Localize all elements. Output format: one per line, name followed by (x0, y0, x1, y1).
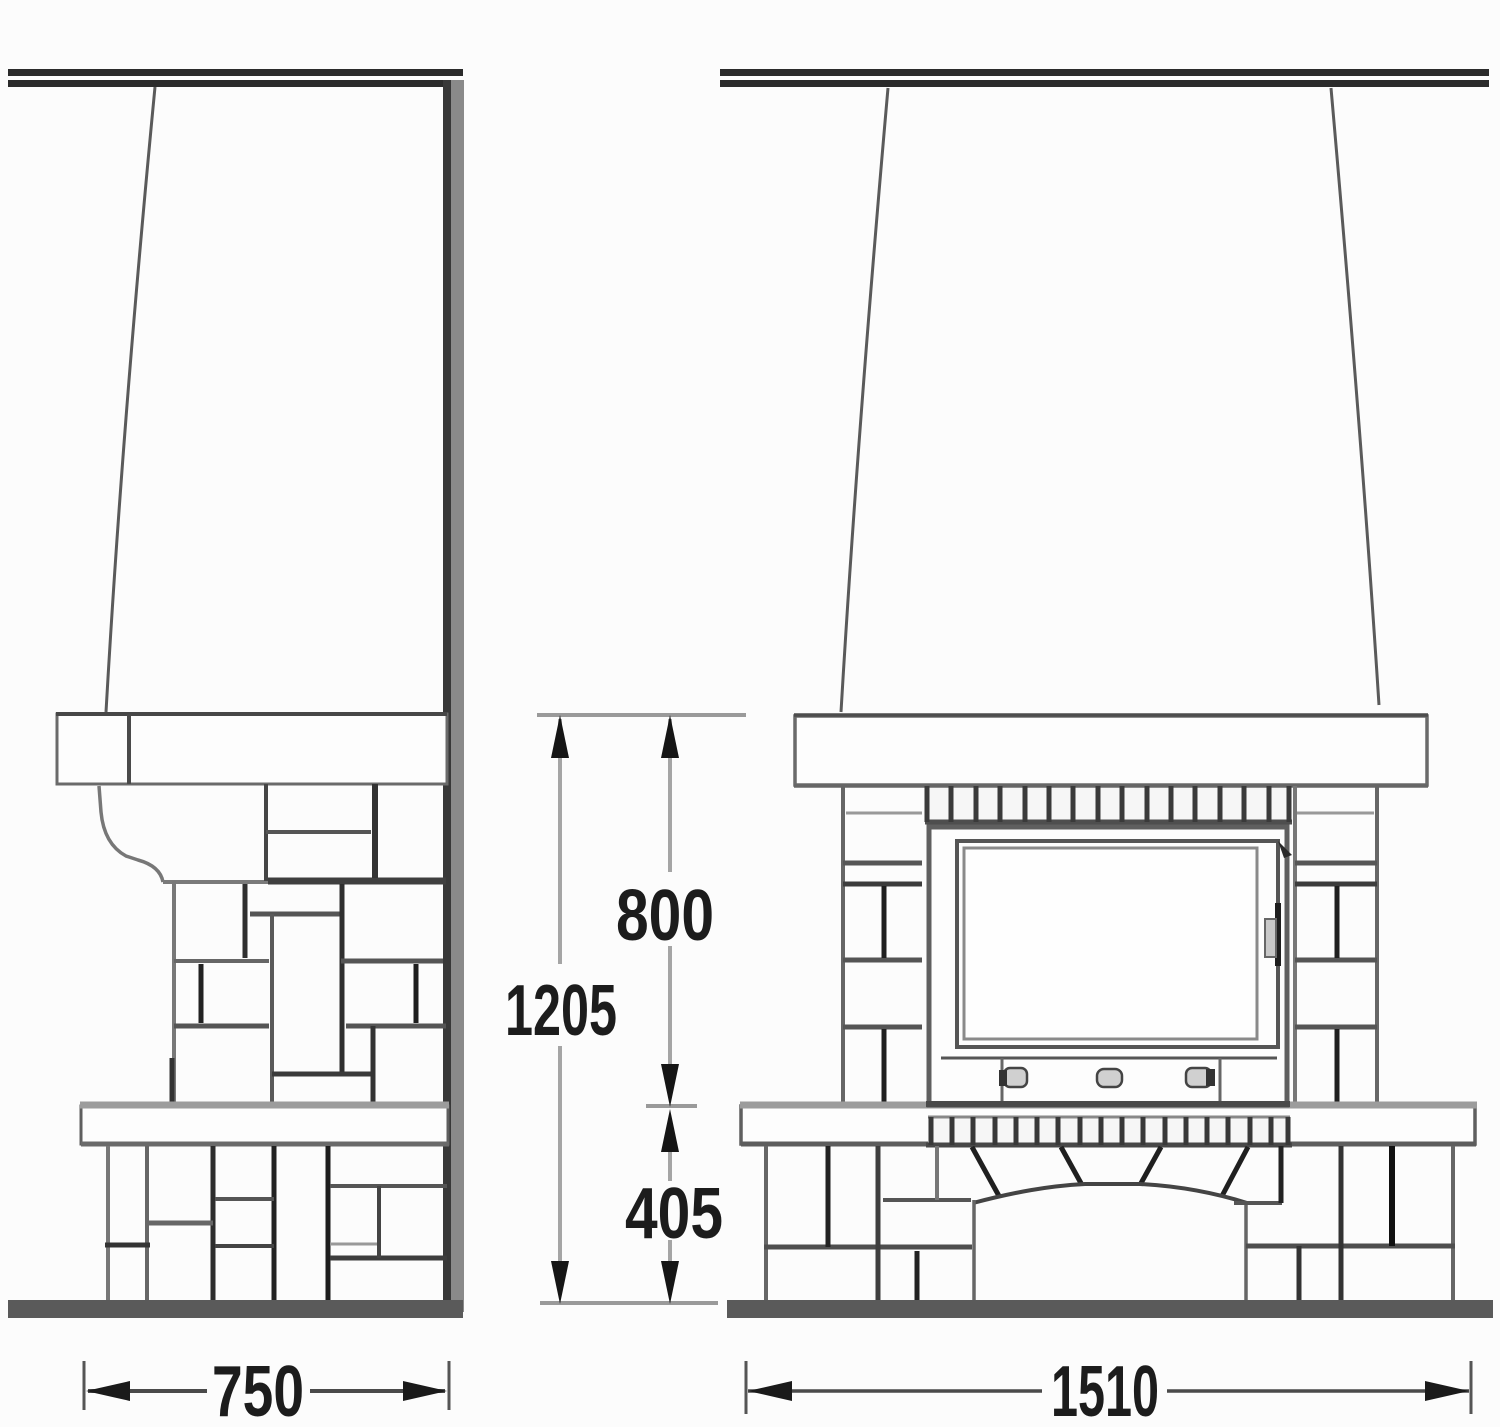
svg-text:405: 405 (625, 1174, 723, 1254)
svg-text:1205: 1205 (505, 971, 617, 1051)
svg-text:750: 750 (212, 1352, 304, 1427)
svg-text:800: 800 (616, 876, 714, 956)
svg-text:1510: 1510 (1051, 1352, 1159, 1427)
